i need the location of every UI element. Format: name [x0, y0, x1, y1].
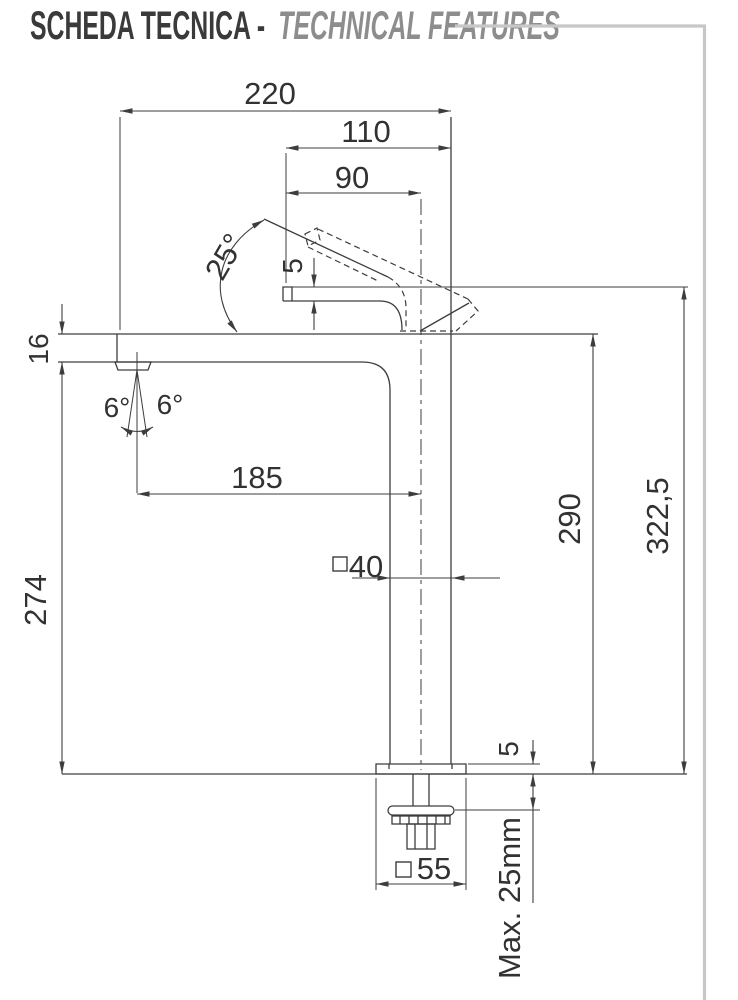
- dim-label-body-section: 40: [349, 549, 383, 584]
- head-back-slant: [420, 303, 469, 331]
- aerator-outline: [115, 362, 151, 370]
- dim-label-spout-offset: 90: [335, 160, 369, 195]
- fixing-nut: [407, 824, 435, 849]
- toothed-ring-teeth: [400, 816, 445, 824]
- fixing-washer: [388, 806, 454, 815]
- dim-label-height-spout-bottom: 274: [18, 574, 53, 626]
- threaded-rod: [413, 774, 429, 806]
- dim-label-head-step: 5: [277, 258, 308, 274]
- dim-label-total-height: 322,5: [640, 477, 675, 555]
- technical-drawing-svg: 220 110 90 25° 5 16 6° 6° 185 40 274 290…: [0, 0, 738, 1000]
- dim-label-head-depth: 110: [341, 114, 390, 149]
- spray-angle-right-line: [137, 370, 147, 437]
- dim-label-max-counter-thickness: Max. 25mm: [492, 817, 527, 979]
- lever-blade-top-edge: [318, 229, 468, 299]
- section-symbols: [333, 557, 411, 877]
- dimension-labels: 220 110 90 25° 5 16 6° 6° 185 40 274 290…: [18, 76, 675, 979]
- dimension-lines: [62, 111, 684, 903]
- dim-label-spout-reach: 185: [231, 460, 283, 495]
- lever-phantom-outline: [305, 228, 478, 331]
- technical-sheet-page: SCHEDA TECNICA - TECHNICAL FEATURES: [0, 0, 738, 1000]
- base-plate-notches: [389, 764, 452, 769]
- lever-neck-curve: [388, 277, 406, 328]
- dim-label-spray-angle-left: 6°: [104, 392, 131, 423]
- head-top-line: [283, 301, 402, 330]
- dim-label-base-plate-thickness: 5: [493, 741, 524, 757]
- square-symbol-icon-40: [333, 557, 347, 571]
- lever-tip-cap: [305, 228, 320, 246]
- dim-label-lever-angle: 25°: [198, 228, 252, 286]
- square-symbol-icon-55: [396, 862, 411, 877]
- dim-label-spout-front-height: 16: [23, 333, 54, 364]
- head-front-lip: [283, 287, 292, 301]
- dim-label-spray-angle-right: 6°: [157, 389, 184, 420]
- dim-label-total-depth: 220: [244, 76, 296, 111]
- fixing-nut-facets: [415, 824, 427, 849]
- dim-label-height-spout-top: 290: [552, 493, 587, 545]
- toothed-ring: [392, 816, 450, 824]
- dim-label-base-section: 55: [417, 851, 451, 886]
